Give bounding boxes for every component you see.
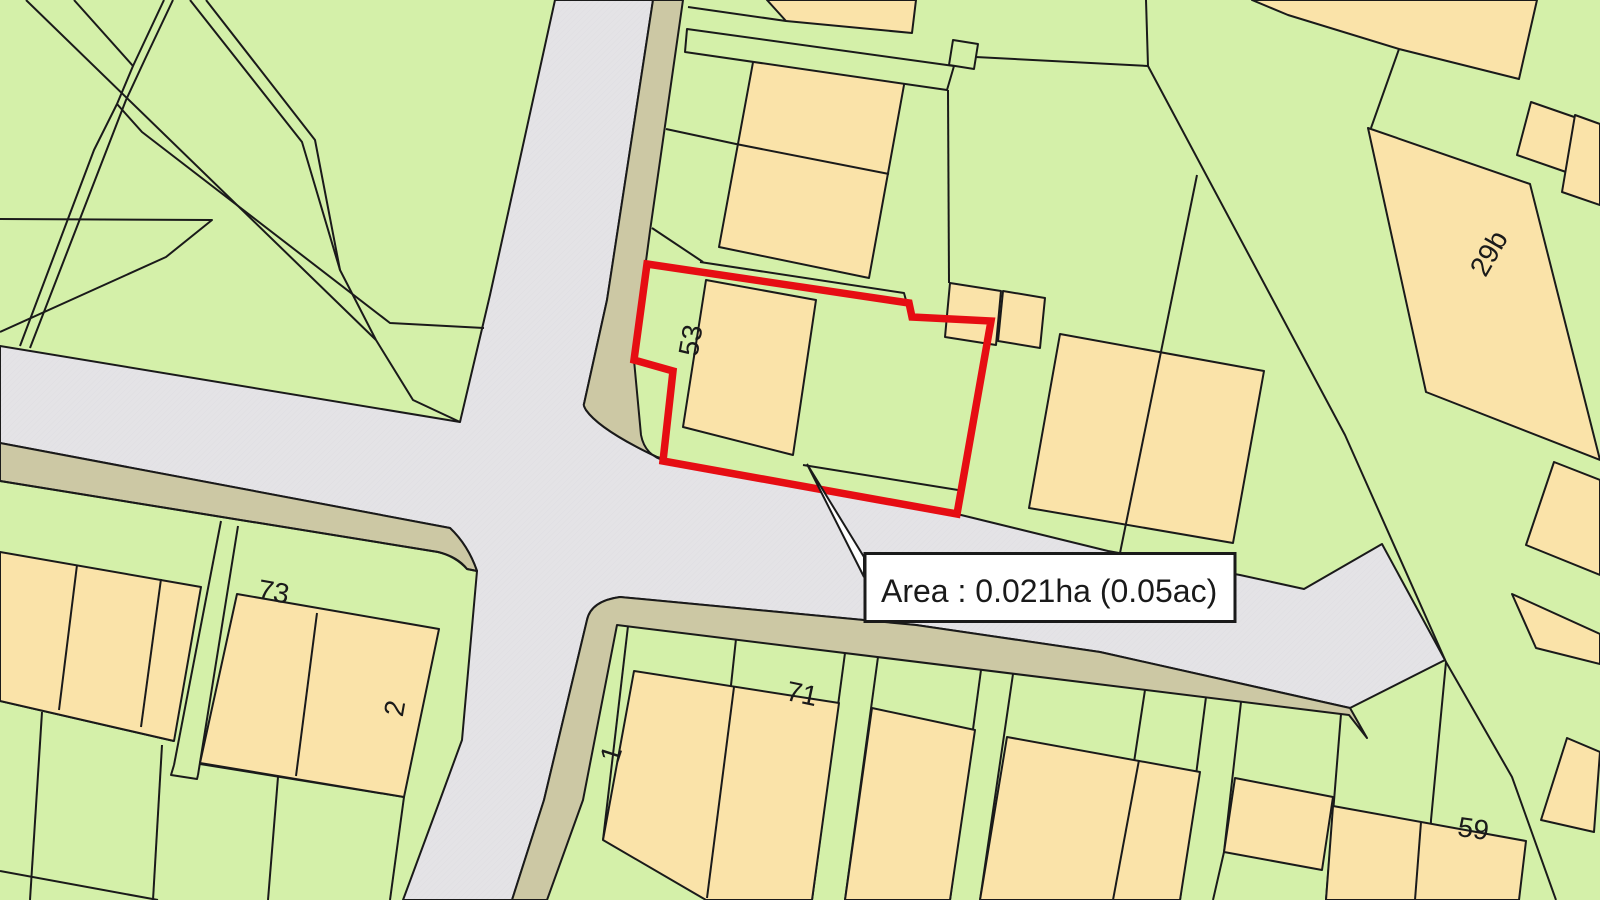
- svg-text:53: 53: [673, 322, 709, 358]
- svg-text:59: 59: [1456, 811, 1491, 846]
- svg-text:Area : 0.021ha (0.05ac): Area : 0.021ha (0.05ac): [881, 573, 1217, 609]
- svg-text:73: 73: [256, 574, 292, 610]
- svg-text:71: 71: [784, 675, 821, 712]
